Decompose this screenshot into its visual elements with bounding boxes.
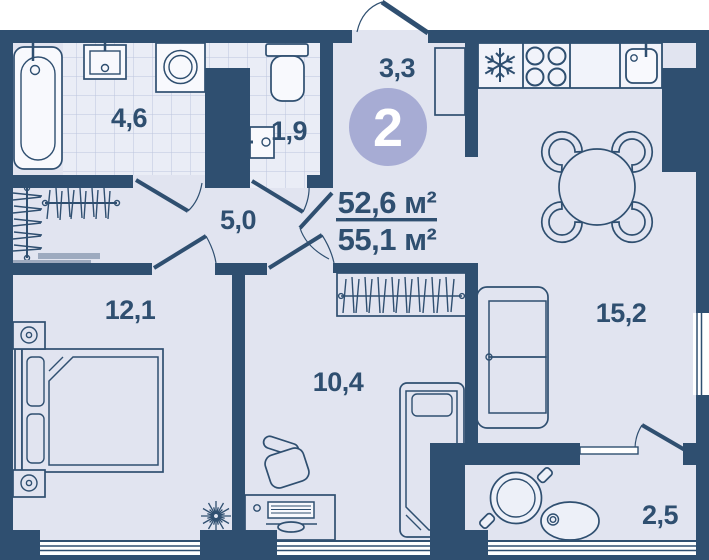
study-area-label: 10,4 [313, 367, 364, 397]
window-living [693, 313, 709, 395]
window-shower-room [488, 542, 696, 555]
double-bed [15, 349, 163, 472]
washing-machine [156, 43, 205, 92]
entry-closet [435, 48, 465, 115]
shower-area-label: 2,5 [642, 500, 679, 530]
sofa [477, 287, 548, 428]
entry-area-label: 3,3 [379, 53, 416, 83]
bathroom-sink [84, 43, 126, 79]
area-divider [336, 218, 437, 221]
floor-plan-page: 2 4,6 1,9 3,3 5,0 12,1 10,4 15,2 2,5 52,… [0, 0, 709, 560]
entry-door [357, 2, 428, 33]
nightstand-bottom [13, 470, 45, 497]
dining-table [559, 149, 635, 225]
kitchen-living-area-label: 15,2 [596, 298, 647, 328]
living-area-value: 52,6 м² [338, 185, 437, 220]
bathroom-area-label: 4,6 [111, 103, 148, 133]
kitchen-counter [478, 43, 662, 88]
window-study [277, 542, 430, 555]
window-bedroom [40, 542, 200, 555]
toilet [266, 44, 308, 101]
hallway-area-label: 5,0 [220, 205, 256, 235]
door-threshold [580, 447, 638, 454]
shower-room-sink [541, 502, 599, 540]
nightstand-top [13, 322, 45, 349]
kitchen-duct [662, 68, 696, 172]
room-count-label: 2 [373, 98, 403, 158]
toilet-area-label: 1,9 [271, 116, 308, 146]
total-area-value: 55,1 м² [338, 222, 437, 257]
floor-plan: 2 4,6 1,9 3,3 5,0 12,1 10,4 15,2 2,5 52,… [0, 0, 709, 560]
wardrobe-hangers [337, 273, 466, 316]
kitchen-sink [626, 43, 657, 83]
bedroom-area-label: 12,1 [105, 295, 156, 325]
bathtub [14, 43, 62, 169]
duct-shaft [205, 68, 250, 188]
